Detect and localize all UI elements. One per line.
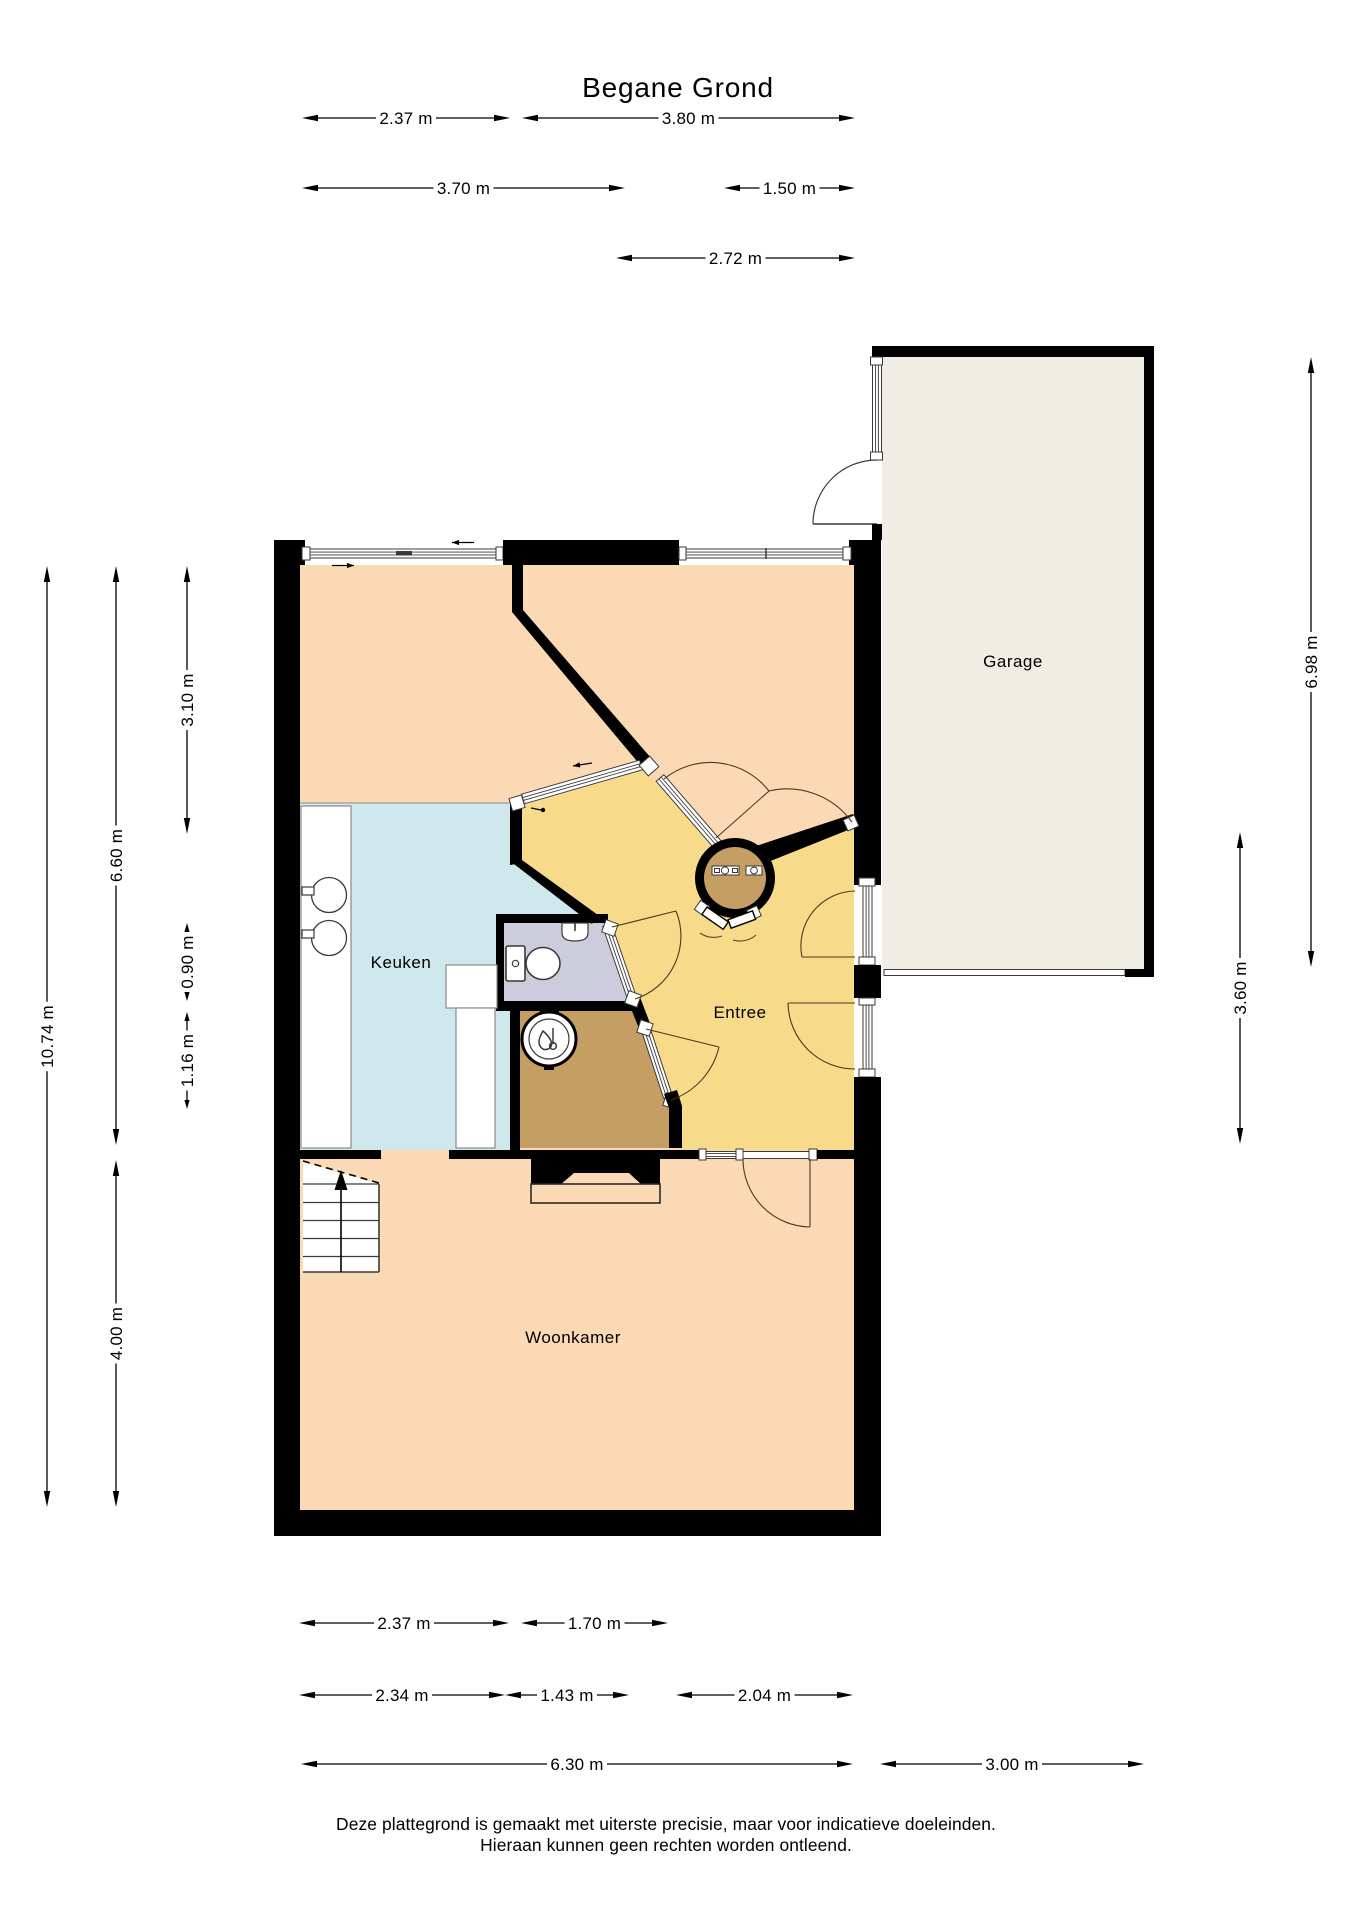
svg-text:3.80 m: 3.80 m [662, 109, 715, 128]
svg-text:2.34 m: 2.34 m [375, 1686, 428, 1705]
svg-text:Deze plattegrond is gemaakt me: Deze plattegrond is gemaakt met uiterste… [336, 1814, 996, 1834]
svg-text:Begane Grond: Begane Grond [582, 72, 774, 103]
svg-text:3.00 m: 3.00 m [985, 1755, 1038, 1774]
svg-text:1.16 m: 1.16 m [178, 1034, 197, 1087]
svg-text:Garage: Garage [983, 652, 1043, 671]
svg-text:1.50 m: 1.50 m [763, 179, 816, 198]
svg-text:6.60 m: 6.60 m [107, 829, 126, 882]
svg-text:3.60 m: 3.60 m [1231, 961, 1250, 1014]
svg-text:3.10 m: 3.10 m [178, 673, 197, 726]
svg-text:1.43 m: 1.43 m [540, 1686, 593, 1705]
svg-text:6.30 m: 6.30 m [550, 1755, 603, 1774]
svg-text:Hieraan kunnen geen rechten wo: Hieraan kunnen geen rechten worden ontle… [480, 1835, 852, 1855]
svg-text:Entree: Entree [713, 1003, 766, 1022]
svg-text:10.74 m: 10.74 m [38, 1005, 57, 1068]
svg-text:1.70 m: 1.70 m [568, 1614, 621, 1633]
svg-text:2.37 m: 2.37 m [379, 109, 432, 128]
svg-text:0.90 m: 0.90 m [178, 935, 197, 988]
svg-text:2.04 m: 2.04 m [738, 1686, 791, 1705]
svg-text:6.98 m: 6.98 m [1302, 635, 1321, 688]
svg-text:Woonkamer: Woonkamer [525, 1328, 621, 1347]
svg-text:2.37 m: 2.37 m [377, 1614, 430, 1633]
svg-text:2.72 m: 2.72 m [709, 249, 762, 268]
svg-text:Keuken: Keuken [371, 953, 432, 972]
svg-text:3.70 m: 3.70 m [437, 179, 490, 198]
svg-text:4.00 m: 4.00 m [107, 1307, 126, 1360]
